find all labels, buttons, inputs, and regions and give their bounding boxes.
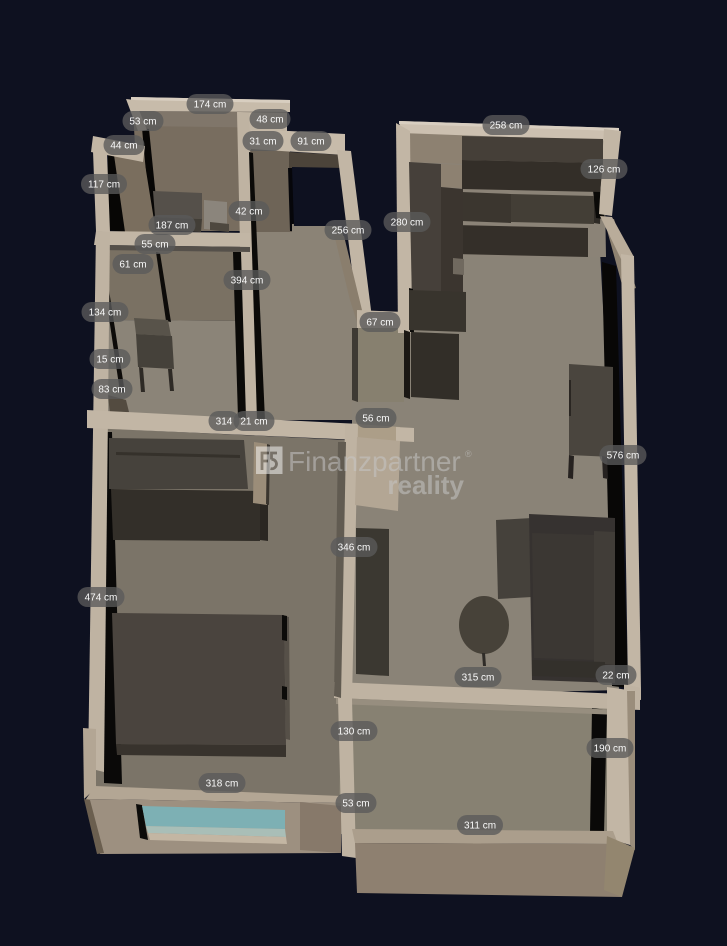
svg-text:474 cm: 474 cm: [85, 593, 118, 604]
svg-text:314: 314: [216, 417, 233, 428]
svg-text:22 cm: 22 cm: [602, 671, 629, 682]
svg-text:91 cm: 91 cm: [297, 137, 324, 148]
svg-text:61 cm: 61 cm: [119, 260, 146, 271]
svg-text:117 cm: 117 cm: [88, 180, 120, 191]
svg-text:reality: reality: [387, 470, 464, 500]
svg-text:256 cm: 256 cm: [332, 226, 365, 237]
svg-text:55 cm: 55 cm: [141, 240, 168, 251]
svg-text:318 cm: 318 cm: [206, 779, 239, 790]
svg-text:174 cm: 174 cm: [194, 100, 227, 111]
svg-text:311 cm: 311 cm: [464, 821, 496, 832]
svg-text:187 cm: 187 cm: [156, 221, 189, 232]
svg-text:134 cm: 134 cm: [89, 308, 122, 319]
svg-text:15 cm: 15 cm: [96, 355, 123, 366]
svg-text:67 cm: 67 cm: [366, 318, 393, 329]
svg-text:83 cm: 83 cm: [98, 385, 125, 396]
svg-text:346 cm: 346 cm: [338, 543, 371, 554]
svg-text:576 cm: 576 cm: [607, 451, 640, 462]
svg-text:®: ®: [465, 449, 472, 459]
svg-text:56 cm: 56 cm: [362, 414, 389, 425]
svg-text:126 cm: 126 cm: [588, 165, 621, 176]
svg-text:53 cm: 53 cm: [129, 117, 156, 128]
svg-text:48 cm: 48 cm: [256, 115, 283, 126]
svg-text:280 cm: 280 cm: [391, 218, 424, 229]
svg-text:130 cm: 130 cm: [338, 727, 371, 738]
svg-text:258 cm: 258 cm: [490, 121, 523, 132]
svg-text:31 cm: 31 cm: [249, 137, 276, 148]
svg-text:21 cm: 21 cm: [240, 417, 267, 428]
svg-text:315 cm: 315 cm: [462, 673, 495, 684]
svg-text:44 cm: 44 cm: [110, 141, 137, 152]
svg-text:42 cm: 42 cm: [235, 207, 262, 218]
svg-text:53 cm: 53 cm: [342, 799, 369, 810]
svg-text:190 cm: 190 cm: [594, 744, 627, 755]
svg-text:394 cm: 394 cm: [231, 276, 264, 287]
